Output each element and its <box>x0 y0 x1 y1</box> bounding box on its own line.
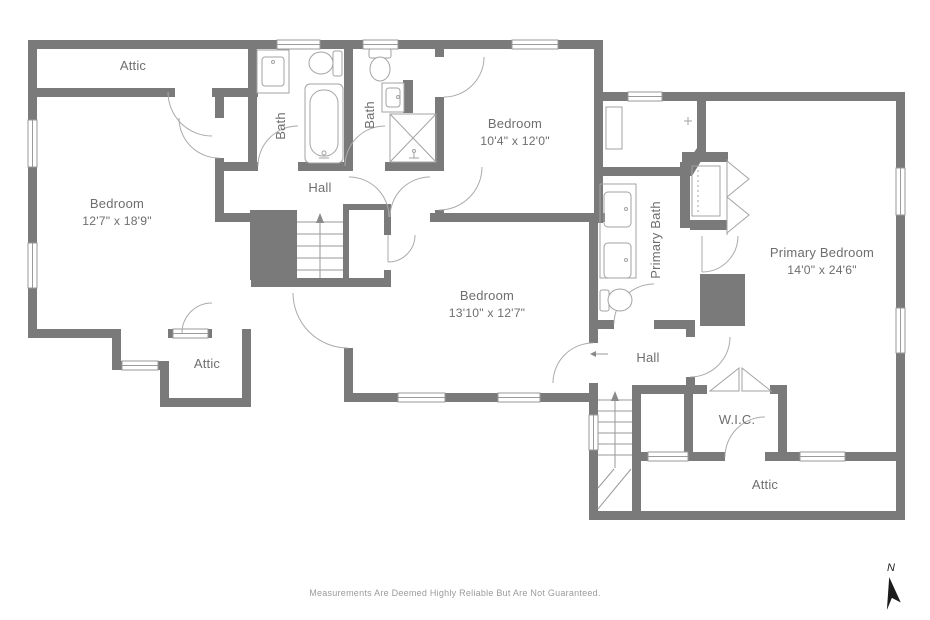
room-dimensions: 12'7" x 18'9" <box>82 213 151 229</box>
walls-layer <box>28 40 905 520</box>
room-label-attic-left: Attic <box>194 355 220 373</box>
window-symbol <box>648 452 688 461</box>
window-symbol <box>589 415 598 450</box>
room-label-bedroom-left: Bedroom 12'7" x 18'9" <box>82 195 151 229</box>
shower-fixture <box>390 114 436 162</box>
room-label-hall-1: Hall <box>308 179 331 197</box>
door-arc <box>179 118 219 158</box>
door-arc <box>553 343 593 383</box>
window-symbol <box>277 40 320 49</box>
disclaimer-text: Measurements Are Deemed Highly Reliable … <box>309 588 600 598</box>
door-arc <box>168 92 212 136</box>
door-arc <box>349 177 389 217</box>
window-symbol <box>28 120 37 167</box>
faucet-icon <box>684 117 692 125</box>
room-label-bath-1: Bath <box>272 112 290 140</box>
sink-fixture <box>382 83 404 112</box>
room-dimensions: 14'0" x 24'6" <box>770 262 874 278</box>
compass-label: N <box>887 562 895 574</box>
door-arc <box>390 177 430 217</box>
entry-arrow-icon <box>590 351 608 357</box>
room-dimensions: 10'4" x 12'0" <box>480 133 549 149</box>
window-symbol <box>398 393 445 402</box>
vanity-sink-fixture <box>257 50 289 93</box>
window-symbol <box>800 452 845 461</box>
shower-bench-fixture <box>606 107 622 149</box>
stairs-upper <box>297 213 343 278</box>
window-symbol <box>28 243 37 288</box>
room-dimensions: 13'10" x 12'7" <box>449 305 525 321</box>
door-arc <box>293 293 348 348</box>
room-label-bath-2: Bath <box>361 101 379 129</box>
closet-shelf-fixture <box>692 166 720 216</box>
window-symbol <box>363 40 398 49</box>
door-arc <box>439 167 482 210</box>
room-label-wic: W.I.C. <box>719 411 756 429</box>
room-name: Bedroom <box>82 195 151 213</box>
floor-plan-canvas: Attic Bedroom 12'7" x 18'9" Bath Bath Be… <box>0 0 930 620</box>
bath1-fixtures <box>257 50 343 163</box>
room-label-primary-bedroom: Primary Bedroom 14'0" x 24'6" <box>770 244 874 278</box>
window-symbol <box>122 361 158 370</box>
room-label-bedroom-top: Bedroom 10'4" x 12'0" <box>480 115 549 149</box>
window-symbol <box>896 308 905 353</box>
window-symbol <box>173 329 208 338</box>
room-name: Primary Bedroom <box>770 244 874 262</box>
double-vanity-fixture <box>600 184 636 278</box>
stairs-up-arrow-icon <box>611 391 619 401</box>
toilet-fixture <box>600 289 632 311</box>
stairs-lower <box>598 391 632 509</box>
north-arrow-icon <box>881 576 901 610</box>
room-label-bedroom-center: Bedroom 13'10" x 12'7" <box>449 287 525 321</box>
door-arc <box>388 235 415 262</box>
bathtub-fixture <box>305 84 343 163</box>
door-arc <box>702 236 738 272</box>
bifold-door-symbol <box>727 159 749 235</box>
door-arc <box>444 57 484 97</box>
window-symbol <box>498 393 540 402</box>
door-arc <box>690 337 730 377</box>
window-symbol <box>512 40 558 49</box>
room-name: Bedroom <box>449 287 525 305</box>
bath2-fixtures <box>369 49 436 162</box>
room-label-primary-bath: Primary Bath <box>647 201 665 279</box>
toilet-fixture <box>369 49 391 81</box>
room-label-hall-2: Hall <box>636 349 659 367</box>
window-symbol <box>896 168 905 215</box>
stairs-up-arrow-icon <box>316 213 324 223</box>
room-name: Bedroom <box>480 115 549 133</box>
room-label-attic-bottom: Attic <box>752 476 778 494</box>
room-label-attic-top: Attic <box>120 57 146 75</box>
stairwell-void <box>250 210 297 280</box>
window-symbol <box>628 92 662 101</box>
toilet-fixture <box>309 51 342 76</box>
double-door-symbol <box>710 368 771 391</box>
